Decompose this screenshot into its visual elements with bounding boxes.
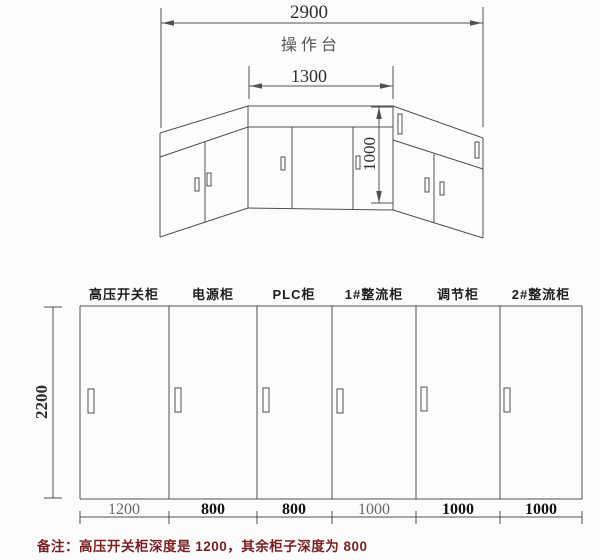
door-handle-icon	[195, 178, 199, 191]
height-dim-label: 2200	[32, 385, 52, 419]
total-width-dim-label: 2900	[290, 2, 328, 24]
center-width-dim-label: 1300	[291, 66, 327, 87]
cabinet-row	[80, 306, 582, 499]
door-handle-icon	[88, 389, 94, 413]
cabinet-label-rectifier-2: 2#整流柜	[512, 284, 570, 303]
door-handle-icon	[475, 142, 479, 158]
cabinet-width-3: 1000	[358, 501, 390, 519]
cabinet-label-regulator: 调节柜	[437, 284, 479, 303]
door-handle-icon	[398, 114, 402, 134]
door-handle-icon	[263, 388, 269, 412]
door-handle-icon	[207, 173, 211, 186]
cabinet-label-power: 电源柜	[192, 284, 234, 303]
cabinet-label-plc: PLC柜	[272, 284, 315, 303]
console-left-wing	[160, 106, 248, 237]
cabinet-width-1: 800	[201, 501, 225, 519]
door-handle-icon	[425, 178, 429, 192]
console-title: 操作台	[281, 31, 341, 55]
door-handle-icon	[440, 182, 444, 195]
cabinet-label-hv-switch: 高压开关柜	[89, 284, 159, 303]
dimension-widths	[80, 511, 582, 524]
cabinet-width-5: 1000	[525, 501, 557, 519]
cad-drawing-page: 2900 操作台 1300 1000 2200 高压开关柜 电源柜 PLC柜 1…	[0, 0, 600, 560]
door-handle-icon	[337, 389, 343, 413]
remark-note: 备注：高压开关柜深度是 1200，其余柜子深度为 800	[37, 535, 368, 555]
cabinet-width-4: 1000	[442, 501, 474, 519]
depth-dim-label: 1000	[360, 137, 380, 171]
console-right-wing	[393, 106, 483, 238]
cabinet-width-0: 1200	[108, 501, 140, 519]
cabinet-width-2: 800	[282, 501, 306, 519]
door-handle-icon	[175, 388, 181, 412]
door-handle-icon	[504, 388, 510, 412]
cabinet-label-rectifier-1: 1#整流柜	[345, 284, 403, 303]
door-handle-icon	[281, 157, 285, 170]
door-handle-icon	[421, 387, 427, 411]
